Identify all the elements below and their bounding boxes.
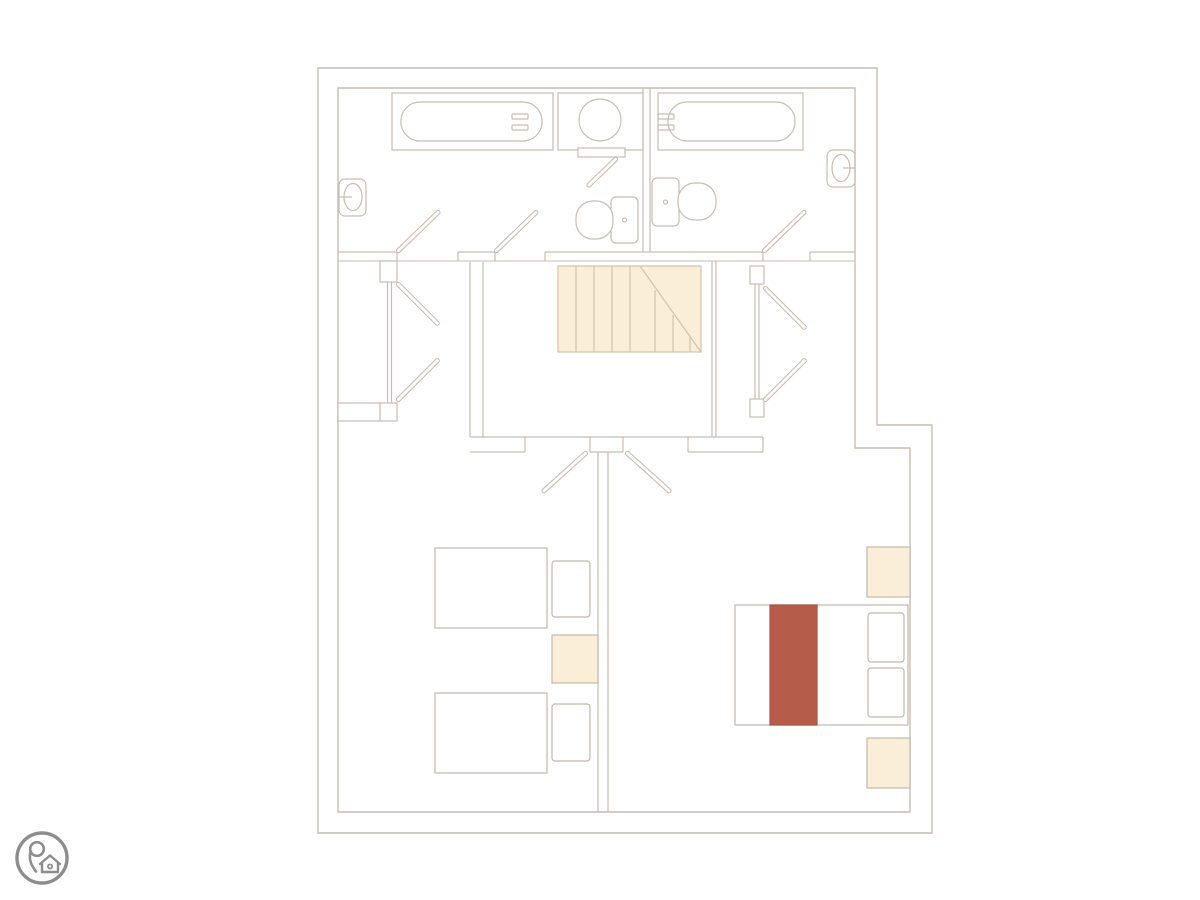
closet-left (338, 261, 397, 421)
floor-plan-page (0, 0, 1200, 900)
nightstand-twin (552, 635, 598, 683)
bathroom-right (652, 93, 856, 226)
nightstand-master-bottom (867, 738, 910, 788)
closet-left-bottom-post (380, 403, 397, 421)
nightstand-master-top (867, 547, 910, 597)
map-pin-home-icon (17, 833, 67, 883)
toilet-left-cistern (611, 197, 638, 243)
double-bed-pillow-bottom (868, 668, 904, 717)
bathtub-right-taps-icon (658, 114, 674, 130)
toilet-right (652, 178, 716, 226)
staircase (558, 266, 701, 352)
closet-right (750, 266, 764, 417)
bathroom-left (339, 93, 643, 243)
twin-bed-1 (435, 548, 547, 628)
door-leaf-closet-left-top (396, 282, 441, 327)
door-leaf-bathroom-middle (494, 210, 539, 254)
bathtub-right (668, 102, 795, 141)
floor-plan-drawing (0, 0, 1200, 900)
toilet-left (576, 197, 638, 243)
closet-right-top-post (750, 266, 764, 284)
twin-bed-2-pillow (552, 704, 590, 761)
door-leaf-closet-right-bottom (763, 358, 808, 403)
toilet-left-bowl (576, 201, 613, 239)
closet-right-bottom-post (750, 399, 764, 417)
bathtub-left (401, 102, 542, 141)
bathtub-left-taps-icon (512, 114, 528, 130)
sink-left (339, 179, 366, 216)
toilet-right-cistern (652, 178, 679, 226)
closet-left-top-post (380, 261, 397, 282)
door-leaf-closet-right-top (763, 286, 808, 331)
double-bed-pillow-top (868, 613, 904, 662)
door-leaf-bathroom-left (396, 210, 441, 254)
bed-runner (770, 605, 817, 725)
door-leaf-twin-bedroom (541, 451, 588, 494)
shower-drain-icon (579, 99, 621, 141)
door-leaf-master-bedroom (625, 451, 672, 494)
twin-bed-2 (435, 693, 547, 773)
toilet-right-bowl (678, 183, 716, 220)
twin-bedroom (435, 548, 598, 773)
master-bedroom (735, 547, 910, 788)
door-leaf-bathroom-right (762, 210, 807, 254)
sink-right (827, 150, 856, 187)
door-leaf-shower (586, 157, 618, 188)
twin-bed-1-pillow (552, 561, 590, 617)
closet-left-bottom-wall (338, 403, 380, 421)
shower-step (578, 148, 625, 157)
door-leaf-closet-left-bottom (396, 358, 441, 403)
